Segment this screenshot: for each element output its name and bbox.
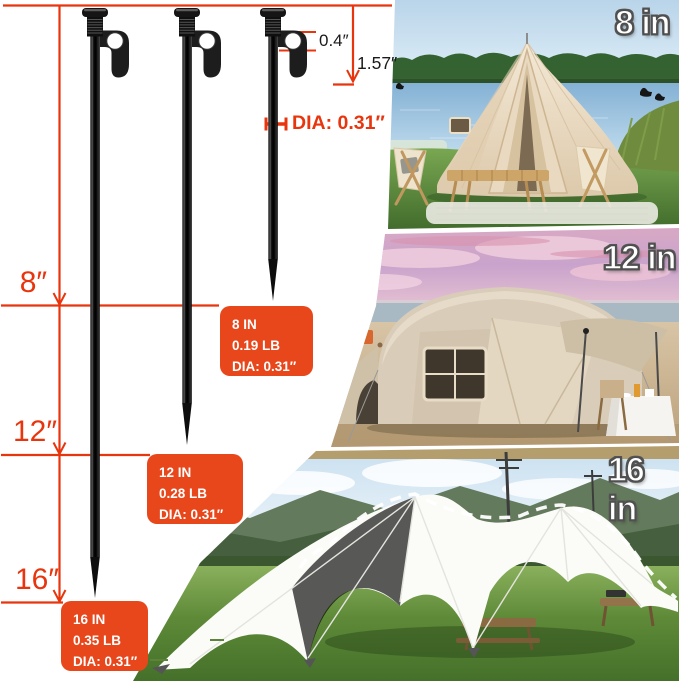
spec-length: 16 IN: [73, 609, 148, 630]
spec-box-8in: 8 IN 0.19 LB DIA: 0.31″: [220, 306, 313, 376]
ruler-label-16in: 16″: [2, 563, 59, 597]
tent-stake-12in: [163, 6, 223, 448]
ruler-label-12in: 12″: [2, 415, 57, 449]
tent-stake-16in: [71, 6, 131, 601]
spec-weight: 0.35 LB: [73, 630, 148, 651]
spec-diameter: DIA: 0.31″: [159, 504, 243, 525]
tent-stake-8in: [249, 6, 309, 304]
spec-weight: 0.19 LB: [232, 335, 313, 356]
shaft-diameter-dimension: DIA: 0.31″: [292, 112, 385, 135]
spec-box-16in: 16 IN 0.35 LB DIA: 0.31″: [61, 601, 148, 671]
product-infographic: 8 in: [0, 0, 679, 681]
hook-hole-dimension: 0.4″: [319, 31, 349, 51]
spec-weight: 0.28 LB: [159, 483, 243, 504]
spec-length: 8 IN: [232, 314, 313, 335]
spec-diameter: DIA: 0.31″: [232, 356, 313, 377]
spec-length: 12 IN: [159, 462, 243, 483]
spec-box-12in: 12 IN 0.28 LB DIA: 0.31″: [147, 454, 243, 524]
spec-diameter: DIA: 0.31″: [73, 651, 148, 672]
head-length-dimension: 1.57″: [357, 53, 397, 74]
ruler-label-8in: 8″: [4, 266, 47, 300]
